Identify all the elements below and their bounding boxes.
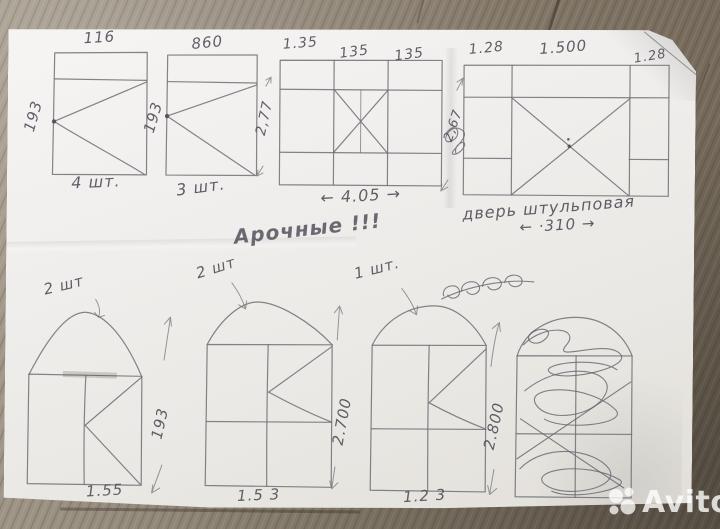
door-sketch <box>463 63 670 197</box>
frame <box>205 344 332 488</box>
frame <box>463 63 670 197</box>
width-label-window3-left: 1.35 <box>280 35 321 52</box>
transom <box>371 428 485 430</box>
center-mark <box>567 138 570 141</box>
arch <box>372 305 486 346</box>
pencil-smudge <box>63 374 117 376</box>
opening-diagonal <box>166 116 255 175</box>
window-sketch-2 <box>164 54 257 176</box>
transom <box>464 96 669 100</box>
count-arrow <box>232 283 247 309</box>
scribble-strike <box>442 280 534 300</box>
width-label-arched1: 1.55 <box>79 482 130 500</box>
sketch-paper: 116 193 4 шт. 860 193 3 шт. 1.35 135 135… <box>3 23 696 512</box>
opening-diagonal <box>429 348 486 403</box>
width-label-arched2: 1.5 3 <box>228 487 289 504</box>
scribble <box>524 371 618 426</box>
width-label-door-left: 1.28 <box>466 40 507 58</box>
opening-diagonal <box>167 84 257 117</box>
count-arrow <box>94 299 104 317</box>
count-arrow <box>402 289 418 315</box>
frame <box>515 355 632 498</box>
dimension-arrow-up <box>491 322 500 366</box>
dimension-arrow-up <box>457 78 463 90</box>
plank-seam <box>416 0 426 24</box>
transom <box>516 433 631 435</box>
mullion <box>427 345 429 490</box>
arch <box>29 312 143 377</box>
opening-diagonal <box>85 425 141 484</box>
mullion <box>84 375 86 484</box>
opening-diagonal <box>429 403 486 429</box>
count-label-window1: 4 шт. <box>71 173 122 191</box>
transom <box>54 79 147 80</box>
opening-diagonal <box>54 81 147 122</box>
transom <box>206 421 331 423</box>
center-line <box>360 90 361 152</box>
width-label-arched3: 1.2 3 <box>394 487 455 506</box>
width-label-door-mid: 1.500 <box>538 38 589 57</box>
dimension-arrow-up <box>334 306 342 340</box>
dimension-arrow-down <box>488 469 497 494</box>
arch <box>207 302 332 346</box>
arched-window-sketch-3 <box>370 288 501 494</box>
dimension-arrow-up <box>266 77 271 86</box>
avito-watermark: Avito <box>598 484 720 520</box>
mullion <box>387 60 389 185</box>
frame <box>52 51 147 175</box>
transom <box>167 82 257 83</box>
dimension-arrow-up <box>164 317 171 360</box>
side-rail <box>464 157 669 160</box>
window-sketch-1 <box>51 51 147 175</box>
avito-watermark-text: Avito <box>642 485 720 520</box>
opening-diagonal <box>53 121 145 174</box>
width-label-window1: 116 <box>79 29 120 46</box>
mullion <box>266 345 268 486</box>
opening-diagonal <box>269 346 332 393</box>
arched-window-sketch-2 <box>205 283 343 489</box>
mullion <box>333 60 335 184</box>
mullion <box>575 356 577 497</box>
avito-logo-icon <box>598 484 638 520</box>
arched-window-sketch-1 <box>27 299 172 493</box>
plank-seam <box>60 507 360 513</box>
scratched-note-scribble <box>442 274 534 300</box>
mullion <box>511 65 513 194</box>
dimension-arrow-down <box>257 166 263 176</box>
window-sketch-3 <box>257 59 443 187</box>
photo-scene: 116 193 4 шт. 860 193 3 шт. 1.35 135 135… <box>0 0 720 529</box>
scribble <box>523 330 622 377</box>
arched-window-sketch-4-scribbled <box>515 317 633 498</box>
dimension-arrow-down <box>152 465 162 493</box>
width-label-window2: 860 <box>187 34 228 53</box>
mullion <box>629 65 631 195</box>
opening-diagonal <box>85 376 142 425</box>
scribble-loops <box>443 274 522 299</box>
frame <box>166 54 258 176</box>
opening-diagonal <box>268 392 331 422</box>
